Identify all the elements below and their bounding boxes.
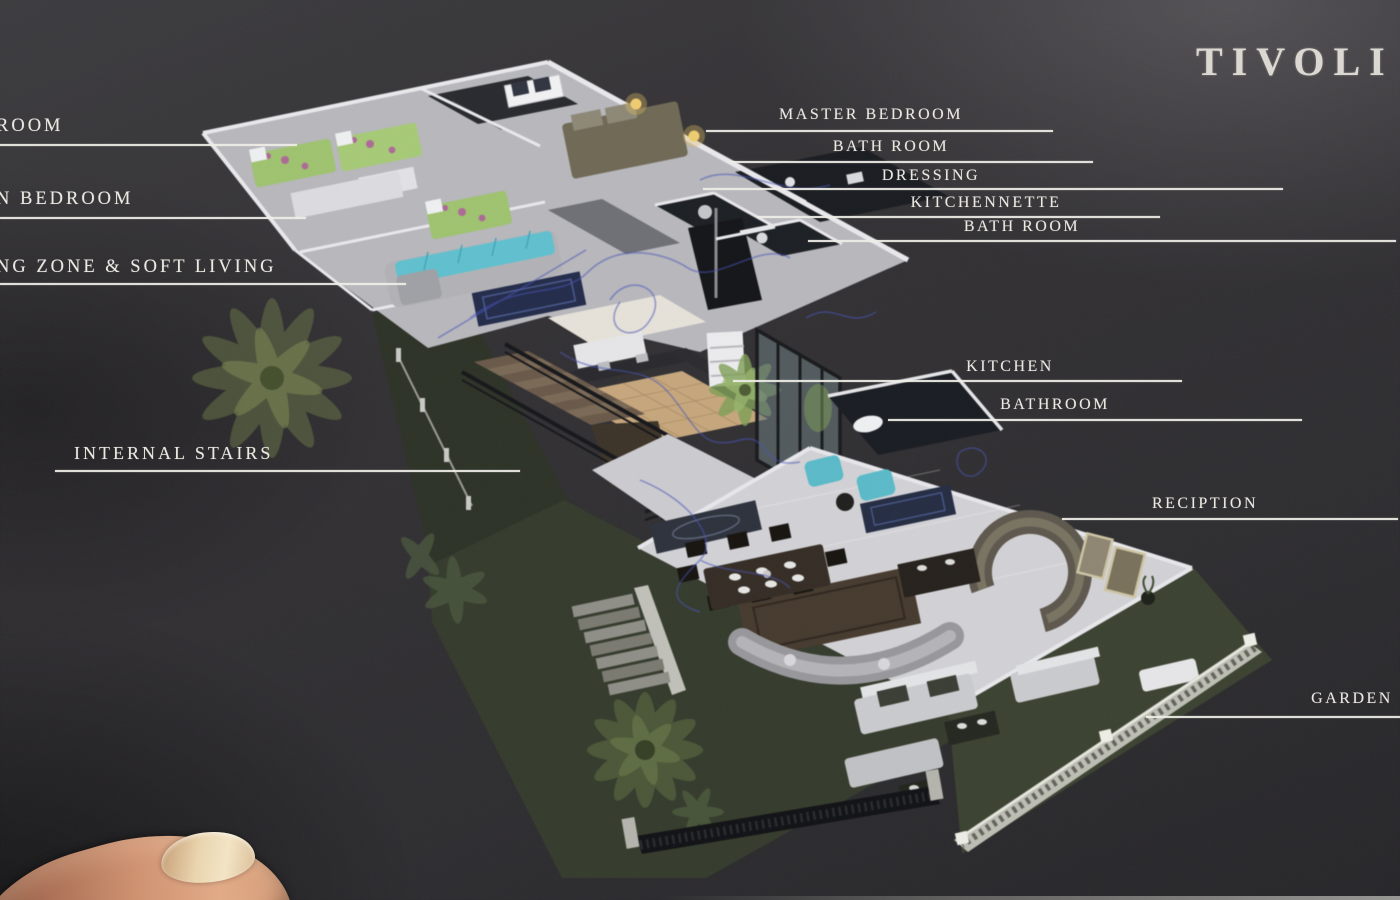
leader-line xyxy=(706,130,1053,132)
label-living-zone-partial: NG ZONE & SOFT LIVING xyxy=(0,257,277,278)
leader-line xyxy=(0,144,297,146)
leader-line xyxy=(55,470,520,472)
label-master-bedroom: MASTER BEDROOM xyxy=(711,106,1031,124)
leader-line xyxy=(1146,716,1400,718)
leader-line xyxy=(888,419,1302,421)
label-bathroom: BATHROOM xyxy=(895,396,1215,414)
card-edge-highlight xyxy=(660,896,1400,900)
poster-title: TIVOLI xyxy=(1196,38,1396,85)
leader-line xyxy=(0,217,306,219)
label-children-bedroom-partial: N BEDROOM xyxy=(0,189,134,210)
label-kitchen: KITCHEN xyxy=(850,358,1170,376)
leader-line xyxy=(733,380,1182,382)
leader-line xyxy=(703,188,1283,190)
label-bath-room-upper: BATH ROOM xyxy=(731,138,1051,156)
leader-line xyxy=(0,283,406,285)
label-garden: GARDEN xyxy=(1192,690,1400,708)
label-kitchennette: KITCHENNETTE xyxy=(826,194,1146,212)
leader-line xyxy=(808,240,1396,242)
photo-of-floorplan-poster: TIVOLI ROOM N BEDROOM NG ZONE & SOFT LIV… xyxy=(0,0,1400,900)
label-reciption: RECIPTION xyxy=(1045,495,1365,513)
leader-line xyxy=(730,161,1093,163)
label-bedroom-partial: ROOM xyxy=(0,116,64,137)
label-dressing: DRESSING xyxy=(771,167,1091,185)
leader-line xyxy=(1062,518,1398,520)
label-internal-stairs: INTERNAL STAIRS xyxy=(74,443,273,464)
label-bath-room-2: BATH ROOM xyxy=(862,218,1182,236)
